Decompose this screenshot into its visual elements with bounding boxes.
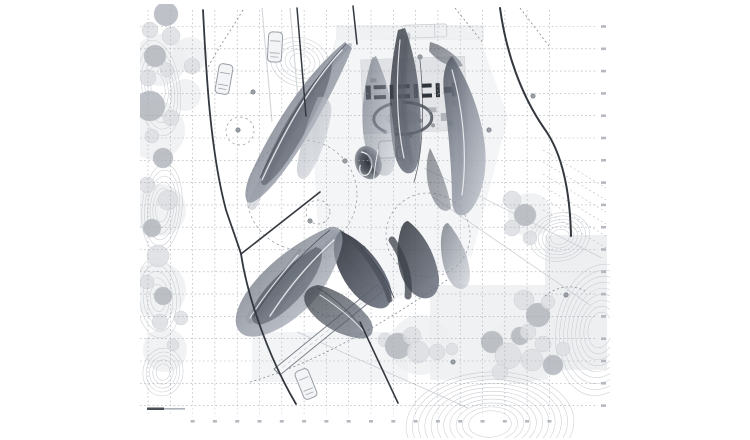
right-tick-label <box>601 360 606 363</box>
tree-symbol <box>429 344 445 360</box>
right-tick-label <box>601 248 606 251</box>
hatch-line <box>543 198 606 236</box>
furniture-block <box>441 113 447 121</box>
bottom-tick-label <box>302 420 306 423</box>
tree-symbol <box>543 355 563 375</box>
marker-dot <box>451 360 455 364</box>
road-edge-line <box>262 8 272 122</box>
right-tick-label <box>601 226 606 229</box>
tree-symbol <box>407 341 429 363</box>
furniture-block <box>428 107 436 112</box>
right-tick-label <box>601 159 606 162</box>
bottom-tick-label <box>547 420 551 423</box>
right-tick-label <box>601 204 606 207</box>
bottom-tick-label <box>436 420 440 423</box>
marker-dot <box>487 128 491 132</box>
scalebar-light-segment <box>164 408 185 409</box>
tree-symbol <box>154 287 172 305</box>
car-body <box>267 32 283 63</box>
right-tick-label <box>601 25 606 28</box>
tree-symbol <box>163 110 179 126</box>
bottom-tick-label <box>347 420 351 423</box>
tree-symbol <box>520 324 536 340</box>
marker-dot <box>308 219 312 223</box>
construction-dash <box>207 10 243 69</box>
site-plan-canvas <box>0 0 750 440</box>
tree-symbol <box>140 275 154 289</box>
bottom-tick-label <box>369 420 373 423</box>
car-body <box>215 63 234 95</box>
right-tick-label <box>601 114 606 117</box>
contour-line <box>449 397 532 440</box>
right-tick-label <box>601 48 606 51</box>
tree-symbol <box>541 295 555 309</box>
marker-dot <box>343 159 347 163</box>
marker-dot <box>564 293 568 297</box>
tree-symbol <box>147 245 169 267</box>
tree-symbol <box>174 311 188 325</box>
contour-line <box>410 372 570 440</box>
wall-segment <box>422 83 432 87</box>
wall-segment <box>422 93 432 97</box>
bottom-tick-label <box>391 420 395 423</box>
road-line <box>203 10 241 254</box>
tree-symbol <box>504 220 520 236</box>
right-tick-label <box>601 70 606 73</box>
tree-symbol <box>145 129 159 143</box>
right-tick-label <box>601 271 606 274</box>
bottom-tick-label <box>481 420 485 423</box>
tree-symbol <box>492 364 508 380</box>
tree-symbol <box>144 45 166 67</box>
bottom-tick-label <box>503 420 507 423</box>
scalebar-dark-segment <box>147 408 164 411</box>
tree-symbol <box>162 27 180 45</box>
right-tick-label <box>601 315 606 318</box>
contour-line <box>429 384 551 440</box>
site-plan-svg <box>0 0 750 440</box>
bottom-tick-label <box>280 420 284 423</box>
marker-dot <box>236 128 240 132</box>
tree-symbol <box>135 91 165 121</box>
tree-symbol <box>160 63 174 77</box>
tree-symbol <box>167 339 179 351</box>
bottom-tick-label <box>525 420 529 423</box>
bottom-tick-label <box>458 420 462 423</box>
tree-symbol <box>446 343 458 355</box>
tree-symbol <box>139 177 155 193</box>
bottom-tick-label <box>191 420 195 423</box>
right-tick-label <box>601 293 606 296</box>
hatch-line <box>543 174 606 212</box>
car-windshield <box>270 41 280 42</box>
tree-symbol <box>556 342 570 356</box>
hatch-line <box>543 162 606 200</box>
right-tick-label <box>601 382 606 385</box>
marker-dot <box>251 90 255 94</box>
bottom-tick-label <box>213 420 217 423</box>
car-roof-line <box>270 53 280 54</box>
tree-symbol <box>521 349 543 371</box>
tree-symbol <box>535 336 551 352</box>
bottom-tick-label <box>324 420 328 423</box>
bottom-tick-label <box>235 420 239 423</box>
contour-line <box>288 51 313 73</box>
tree-symbol <box>158 190 178 210</box>
right-tick-label <box>601 92 606 95</box>
tree-symbol <box>154 2 178 26</box>
bottom-tick-label <box>414 420 418 423</box>
wash-blob <box>143 328 187 372</box>
tree-symbol <box>142 22 158 38</box>
scalebar-layer <box>147 408 185 411</box>
bottom-tick-label <box>258 420 262 423</box>
right-tick-label <box>601 137 606 140</box>
construction-dash <box>520 8 549 46</box>
right-tick-label <box>601 337 606 340</box>
tree-symbol <box>523 231 537 245</box>
contour-line <box>468 410 512 439</box>
right-tick-label <box>601 404 606 407</box>
tree-symbol <box>143 219 161 237</box>
car-symbol <box>267 32 283 63</box>
car-symbol <box>215 63 234 95</box>
marker-dot <box>531 94 535 98</box>
marker-dot <box>418 55 422 59</box>
right-tick-label <box>601 181 606 184</box>
tree-symbol <box>184 58 200 74</box>
